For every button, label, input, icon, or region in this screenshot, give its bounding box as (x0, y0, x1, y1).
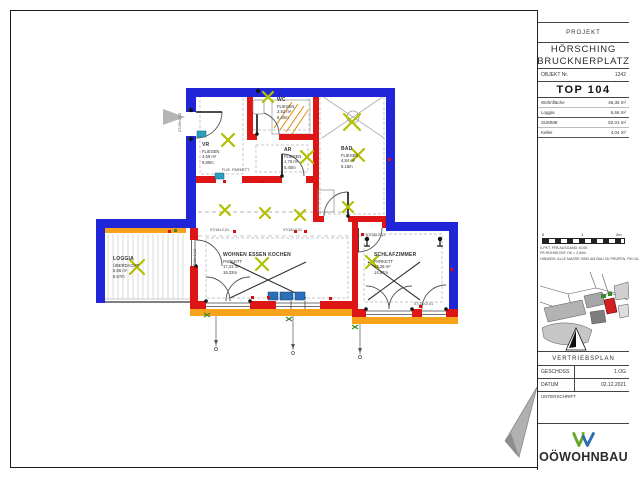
dim-window-4: 07/18×2,01 (414, 302, 433, 306)
bath-fixture (318, 190, 334, 212)
unit-number: TOP 104 (556, 84, 610, 96)
wall-connector-symbols (364, 239, 443, 246)
dim-window-3: 07/18×2,01 (366, 233, 385, 237)
area-row-keller: Keller 4,04 m² (538, 128, 629, 138)
room-label-vr: VR FLIESEN 4,59 m² 8,80m (202, 142, 219, 166)
objekt-row: OBJEKT Nr. 1242 (538, 69, 629, 82)
room-label-schlafzimmer: SCHLAFZIMMER PARKETT 13,28 m² 14,67m (374, 252, 416, 276)
interior-walls (190, 97, 458, 317)
highlighted-unit (604, 298, 617, 314)
room-label-wc: WC FLIESEN 2,52 m² 6,40m (277, 97, 294, 121)
geschoss-label: GESCHOSS (541, 369, 569, 375)
note-line-3: HINWEIS: ALLE MASSE SIND AM BAU ZU PRÜFE… (540, 257, 627, 262)
site-tree-2 (608, 292, 612, 296)
room-label-loggia: LOGGIA ÜBERDACHT 5,66 m² 9,67m (113, 256, 139, 280)
dim-window-2: 07/18×2,01 (283, 228, 302, 232)
dim-loggia-door: 27/18×2,13 (193, 249, 197, 268)
scale-tick-1: 1 (581, 232, 583, 237)
survey-flags (214, 340, 362, 353)
scale-tick-2: 2m (616, 232, 622, 237)
brand-name: OÖWOHNBAU (539, 450, 628, 464)
project-name-line1: HÖRSCHING (551, 44, 616, 56)
unterschrift-field: UNTERSCHRIFT (538, 392, 629, 424)
room-label-ar: AR FLIESEN 1,76 m² 5,40m (284, 147, 301, 171)
datum-label: DATUM (541, 382, 558, 388)
scale-bar: 0 1 2m 0-PKT. FFB AUSGANG ±0,00 FB ROHDE… (538, 230, 629, 272)
site-buildings (542, 282, 629, 345)
title-block: PROJEKT HÖRSCHING BRUCKNERPLATZ OBJEKT N… (537, 10, 629, 470)
loggia-green-mark (174, 229, 177, 232)
site-tree (601, 294, 606, 298)
dim-window-1: 07/18×2,01 (210, 228, 229, 232)
floor-change-label: FLIE. PARKETT (222, 168, 249, 172)
unterschrift-label: UNTERSCHRIFT (541, 394, 576, 399)
datum-value: 02.12.2021 (601, 382, 626, 388)
area-row-summe: SUMME 52,01 m² (538, 118, 629, 128)
logo-w-icon (571, 431, 597, 448)
project-name-line2: BRUCKNERPLATZ (538, 56, 629, 68)
north-needle-icon (495, 383, 543, 467)
plan-page: VR FLIESEN 4,59 m² 8,80m WC FLIESEN 2,52… (0, 0, 640, 480)
scale-tick-0: 0 (542, 232, 544, 237)
exterior-walls (96, 88, 458, 318)
objekt-value: 1242 (615, 72, 626, 78)
project-name: HÖRSCHING BRUCKNERPLATZ (538, 43, 629, 69)
titleblock-spacer (538, 10, 629, 23)
area-row-wohnflaeche: Wohnfläche 46,35 m² (538, 98, 629, 108)
kitchen-units (268, 292, 305, 300)
geschoss-value: 1.OG (614, 369, 626, 375)
site-plan-map (538, 272, 629, 351)
projekt-label: PROJEKT (566, 30, 601, 36)
room-label-wohnen: WOHNEN ESSEN KOCHEN PARKETT 17,23 m² 19,… (223, 252, 291, 276)
datum-row: DATUM 02.12.2021 (538, 379, 629, 392)
dim-entrance-door: 27/18×2,13 (178, 113, 182, 132)
company-logo: OÖWOHNBAU (538, 424, 629, 470)
survey-marks (215, 316, 362, 359)
area-row-loggia: Loggia 5,66 m² (538, 108, 629, 118)
plan-type-label: VERTRIEBSPLAN (552, 356, 615, 362)
titleblock-gap (538, 138, 629, 230)
door-arcs (196, 112, 446, 309)
site-plan (538, 272, 629, 352)
plan-notes: 0-PKT. FFB AUSGANG ±0,00 FB ROHDECKE OK … (538, 244, 629, 262)
room-label-bad: BAD FLIESEN 4,84 m² 8,18m (341, 146, 358, 170)
area-table: Wohnfläche 46,35 m² Loggia 5,66 m² SUMME… (538, 98, 629, 138)
objekt-label: OBJEKT Nr. (541, 72, 568, 78)
geschoss-row: GESCHOSS 1.OG (538, 366, 629, 379)
bath-diagonals (322, 96, 384, 138)
